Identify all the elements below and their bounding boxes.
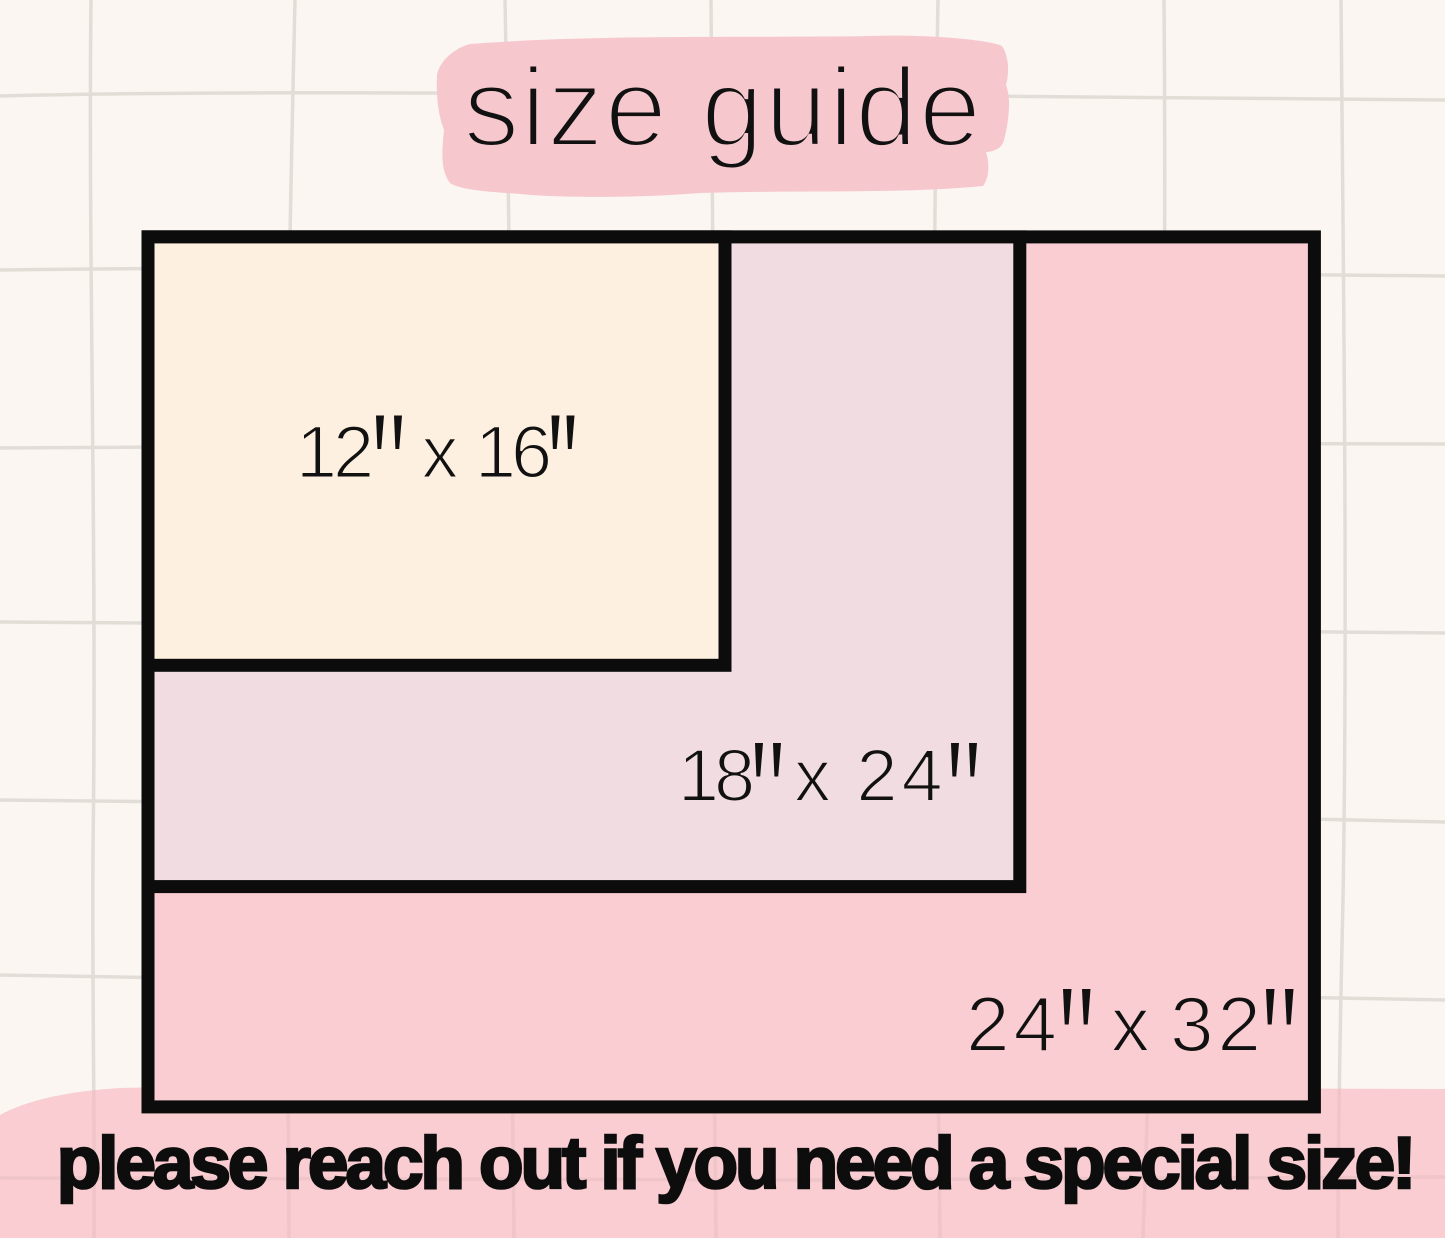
svg-text:24: 24 bbox=[966, 980, 1061, 1068]
svg-text:24: 24 bbox=[856, 734, 946, 817]
svg-text:x: x bbox=[794, 734, 831, 817]
svg-text:please reach out if you need a: please reach out if you need a special s… bbox=[57, 1123, 1414, 1204]
svg-text:16: 16 bbox=[475, 411, 549, 494]
svg-text:size guide: size guide bbox=[463, 45, 982, 170]
svg-text:x: x bbox=[1111, 980, 1150, 1068]
svg-text:18: 18 bbox=[678, 734, 752, 817]
svg-text:x: x bbox=[422, 411, 459, 494]
svg-text:32: 32 bbox=[1170, 980, 1265, 1068]
svg-text:12: 12 bbox=[296, 411, 371, 494]
